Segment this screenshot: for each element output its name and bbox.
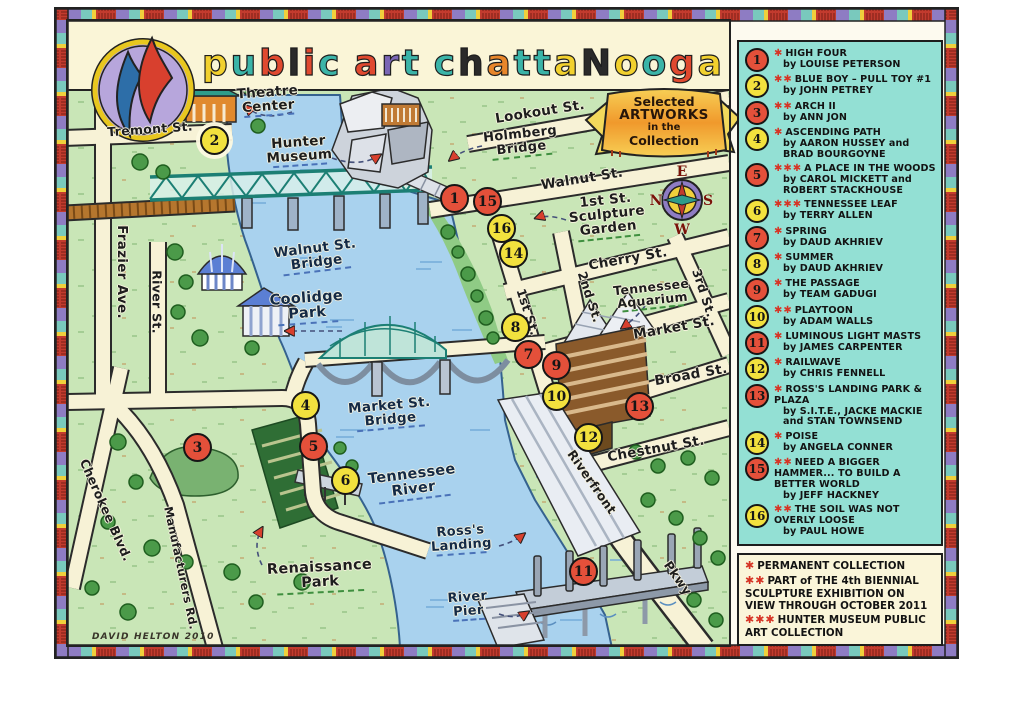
title-letter: t <box>402 43 419 84</box>
artwork-title: THE PASSAGE <box>785 278 859 289</box>
legend-item-13: 13✱ROSS'S LANDING PARK & PLAZAby S.I.T.E… <box>745 384 937 429</box>
compass-letter-left: N <box>650 193 663 209</box>
legend-item-2: 2✱✱BLUE BOY – PULL TOY #1by JOHN PETREY <box>745 74 937 98</box>
legend-item-4: 4✱ASCENDING PATHby AARON HUSSEY and BRAD… <box>745 127 937 161</box>
title-letter: h <box>458 43 484 84</box>
star-icon: ✱ <box>774 384 783 395</box>
artwork-title: LUMINOUS LIGHT MASTS <box>785 331 921 342</box>
title-letter: N <box>581 43 611 84</box>
legend-item-text: ✱SPRINGby DAUD AKHRIEV <box>774 226 883 249</box>
legend-item-10: 10✱✱PLAYTOONby ADAM WALLS <box>745 305 937 329</box>
compass-letter-right: S <box>703 193 713 209</box>
legend-item-text: ✱✱✱A PLACE IN THE WOODSby CAROL MICKETT … <box>774 163 937 197</box>
legend-item-text: ✱✱PLAYTOONby ADAM WALLS <box>774 305 873 328</box>
map-marker-3[interactable]: 3 <box>183 433 212 462</box>
legend-marker-14: 14 <box>745 431 769 455</box>
label-frazier-ave: Frazier Ave. <box>115 225 129 319</box>
legend-marker-10: 10 <box>745 305 769 329</box>
artwork-artist: by LOUISE PETERSON <box>774 60 901 71</box>
legend-marker-6: 6 <box>745 199 769 223</box>
star-icon: ✱✱✱ <box>774 163 802 174</box>
star-icon: ✱ <box>774 278 783 289</box>
legend-marker-2: 2 <box>745 74 769 98</box>
label-theatre-center: Theatre Center <box>236 83 299 119</box>
title-letter: t <box>534 43 551 84</box>
map-marker-7[interactable]: 7 <box>514 340 543 369</box>
legend-footnotes-panel: ✱PERMANENT COLLECTION✱✱PART of THE 4th B… <box>737 553 943 646</box>
star-icon: ✱ <box>774 431 783 442</box>
star-icon: ✱ <box>774 48 783 59</box>
star-icon: ✱✱ <box>774 457 793 468</box>
legend-item-text: ✱THE PASSAGEby TEAM GADUGI <box>774 278 877 301</box>
legend-item-11: 11✱LUMINOUS LIGHT MASTSby JAMES CARPENTE… <box>745 331 937 355</box>
map-marker-9[interactable]: 9 <box>542 351 571 380</box>
artwork-artist: by DAUD AKHRIEV <box>774 264 883 275</box>
legend-marker-9: 9 <box>745 278 769 302</box>
map-marker-1[interactable]: 1 <box>440 184 469 213</box>
legend-item-text: ✱ASCENDING PATHby AARON HUSSEY and BRAD … <box>774 127 937 161</box>
label-renaissance-park: Renaissance Park <box>267 558 374 597</box>
title-letter: o <box>641 43 666 84</box>
title-letter: u <box>231 43 257 84</box>
banner-line: ARTWORKS <box>619 108 709 123</box>
star-icon: ✱✱ <box>774 74 793 85</box>
artwork-title: SPRING <box>785 226 826 237</box>
legend-marker-3: 3 <box>745 101 769 125</box>
title-letter: c <box>434 43 455 84</box>
public-art-chattanooga-map: publicartchattaNooga Selected ARTWORKS i… <box>0 0 1024 705</box>
legend-panel: 1✱HIGH FOURby LOUISE PETERSON2✱✱BLUE BOY… <box>737 40 943 546</box>
map-marker-13[interactable]: 13 <box>625 392 654 421</box>
footnote-text: PERMANENT COLLECTION <box>757 560 905 572</box>
map-marker-10[interactable]: 10 <box>542 382 571 411</box>
label-ross-s-landing: Ross's Landing <box>430 523 493 557</box>
title-letter: c <box>318 43 339 84</box>
footnote-text: PART of THE 4th BIENNIAL SCULPTURE EXHIB… <box>745 575 927 612</box>
map-marker-6[interactable]: 6 <box>331 466 360 495</box>
title-letter: i <box>303 43 315 84</box>
legend-marker-7: 7 <box>745 226 769 250</box>
map-marker-5[interactable]: 5 <box>299 432 328 461</box>
map-marker-12[interactable]: 12 <box>574 423 603 452</box>
star-icon: ✱ <box>745 559 755 572</box>
artwork-title: TENNESSEE LEAF <box>804 199 898 210</box>
map-title: publicartchattaNooga <box>202 37 722 89</box>
label-1st-st-sculpture-garden: 1st St. Sculpture Garden <box>567 189 648 242</box>
star-icon: ✱✱ <box>774 101 793 112</box>
artwork-artist: by CHRIS FENNELL <box>774 369 885 380</box>
legend-item-text: ✱HIGH FOURby LOUISE PETERSON <box>774 48 901 71</box>
artwork-artist: by JOHN PETREY <box>774 86 931 97</box>
banner-line: Selected <box>633 95 694 109</box>
map-marker-16[interactable]: 16 <box>487 214 516 243</box>
artwork-artist: by JEFF HACKNEY <box>774 491 937 502</box>
title-letter: l <box>288 43 300 84</box>
legend-item-text: ✱LUMINOUS LIGHT MASTSby JAMES CARPENTER <box>774 331 921 354</box>
legend-item-text: ✱✱NEED A BIGGER HAMMER... TO BUILD A BET… <box>774 457 937 502</box>
legend-item-text: ✱ROSS'S LANDING PARK & PLAZAby S.I.T.E.,… <box>774 384 937 429</box>
legend-marker-11: 11 <box>745 331 769 355</box>
banner-line: Collection <box>629 134 699 148</box>
title-letter: r <box>381 43 399 84</box>
artwork-artist: by TERRY ALLEN <box>774 211 898 222</box>
map-marker-8[interactable]: 8 <box>501 313 530 342</box>
title-letter: a <box>354 43 378 84</box>
star-icon: ✱ <box>774 226 783 237</box>
artwork-artist: by ANGELA CONNER <box>774 443 893 454</box>
map-marker-15[interactable]: 15 <box>473 187 502 216</box>
selected-artworks-banner: Selected ARTWORKS in the Collection <box>602 90 726 152</box>
title-letter: a <box>698 43 722 84</box>
legend-footnote-2: ✱✱PART of THE 4th BIENNIAL SCULPTURE EXH… <box>745 575 935 612</box>
legend-item-text: ✱✱ARCH IIby ANN JON <box>774 101 847 124</box>
title-letter: b <box>259 43 285 84</box>
legend-marker-5: 5 <box>745 163 769 187</box>
title-letter: p <box>202 43 228 84</box>
star-icon: ✱ <box>774 331 783 342</box>
legend-item-12: 12✱RAILWAVEby CHRIS FENNELL <box>745 357 937 381</box>
artwork-title: SUMMER <box>785 252 833 263</box>
legend-item-text: ✱SUMMERby DAUD AKHRIEV <box>774 252 883 275</box>
artwork-title: BLUE BOY – PULL TOY #1 <box>795 74 931 85</box>
legend-marker-8: 8 <box>745 252 769 276</box>
legend-item-text: ✱✱✱TENNESSEE LEAFby TERRY ALLEN <box>774 199 898 222</box>
label-coolidge-park: Coolidge Park <box>269 289 345 327</box>
star-icon: ✱✱ <box>745 574 765 587</box>
star-icon: ✱✱ <box>774 305 793 316</box>
legend-item-text: ✱POISEby ANGELA CONNER <box>774 431 893 454</box>
star-icon: ✱ <box>774 127 783 138</box>
artwork-title: PLAYTOON <box>795 305 853 316</box>
legend-marker-1: 1 <box>745 48 769 72</box>
label-river-st: River St. <box>150 270 163 333</box>
compass-letter-bottom: W <box>674 222 690 238</box>
star-icon: ✱✱✱ <box>774 199 802 210</box>
legend-footnote-3: ✱✱✱HUNTER MUSEUM PUBLIC ART COLLECTION <box>745 614 935 639</box>
legend-item-5: 5✱✱✱A PLACE IN THE WOODSby CAROL MICKETT… <box>745 163 937 197</box>
artwork-artist: by DAUD AKHRIEV <box>774 238 883 249</box>
title-letter: a <box>486 43 510 84</box>
legend-marker-13: 13 <box>745 384 769 408</box>
legend-item-9: 9✱THE PASSAGEby TEAM GADUGI <box>745 278 937 302</box>
title-letter: t <box>514 43 531 84</box>
artwork-title: RAILWAVE <box>785 357 840 368</box>
artwork-artist: by ADAM WALLS <box>774 317 873 328</box>
compass-letter-top: E <box>677 164 688 180</box>
compass-rose <box>662 180 702 220</box>
legend-item-8: 8✱SUMMERby DAUD AKHRIEV <box>745 252 937 276</box>
title-letter: o <box>614 43 639 84</box>
artwork-title: ARCH II <box>795 101 836 112</box>
artwork-artist: by CAROL MICKETT and ROBERT STACKHOUSE <box>774 175 937 197</box>
artwork-title: ASCENDING PATH <box>785 127 881 138</box>
legend-item-14: 14✱POISEby ANGELA CONNER <box>745 431 937 455</box>
legend-item-15: 15✱✱NEED A BIGGER HAMMER... TO BUILD A B… <box>745 457 937 502</box>
title-letter: g <box>669 43 695 84</box>
artwork-artist: by PAUL HOWE <box>774 527 937 538</box>
artwork-artist: by TEAM GADUGI <box>774 290 877 301</box>
legend-item-1: 1✱HIGH FOURby LOUISE PETERSON <box>745 48 937 72</box>
legend-item-3: 3✱✱ARCH IIby ANN JON <box>745 101 937 125</box>
map-marker-2[interactable]: 2 <box>200 126 229 155</box>
artwork-artist: by ANN JON <box>774 113 847 124</box>
artwork-artist: by S.I.T.E., JACKE MACKIE and STAN TOWNS… <box>774 407 937 429</box>
legend-item-text: ✱RAILWAVEby CHRIS FENNELL <box>774 357 885 380</box>
label-river-pier: River Pier <box>447 590 489 623</box>
map-marker-14[interactable]: 14 <box>499 239 528 268</box>
map-marker-11[interactable]: 11 <box>569 557 598 586</box>
legend-item-6: 6✱✱✱TENNESSEE LEAFby TERRY ALLEN <box>745 199 937 223</box>
legend-marker-4: 4 <box>745 127 769 151</box>
legend-marker-16: 16 <box>745 504 769 528</box>
legend-item-16: 16✱✱THE SOIL WAS NOT OVERLY LOOSEby PAUL… <box>745 504 937 538</box>
legend-item-7: 7✱SPRINGby DAUD AKHRIEV <box>745 226 937 250</box>
star-icon: ✱ <box>774 252 783 263</box>
label-hunter-museum: Hunter Museum <box>265 133 333 169</box>
map-marker-4[interactable]: 4 <box>291 391 320 420</box>
artwork-title: HIGH FOUR <box>785 48 847 59</box>
title-letter: a <box>554 43 578 84</box>
legend-footnote-1: ✱PERMANENT COLLECTION <box>745 560 935 573</box>
legend-marker-15: 15 <box>745 457 769 481</box>
legend-item-text: ✱✱THE SOIL WAS NOT OVERLY LOOSEby PAUL H… <box>774 504 937 538</box>
artwork-title: POISE <box>785 431 818 442</box>
artist-signature: DAVID HELTON 2010 <box>92 632 215 642</box>
star-icon: ✱✱✱ <box>745 613 776 626</box>
star-icon: ✱✱ <box>774 504 793 515</box>
star-icon: ✱ <box>774 357 783 368</box>
artwork-title: A PLACE IN THE WOODS <box>804 163 935 174</box>
artwork-artist: by AARON HUSSEY and BRAD BOURGOYNE <box>774 139 937 161</box>
artwork-title: ROSS'S LANDING PARK & PLAZA <box>774 384 922 406</box>
legend-marker-12: 12 <box>745 357 769 381</box>
artwork-artist: by JAMES CARPENTER <box>774 343 921 354</box>
legend-item-text: ✱✱BLUE BOY – PULL TOY #1by JOHN PETREY <box>774 74 931 97</box>
